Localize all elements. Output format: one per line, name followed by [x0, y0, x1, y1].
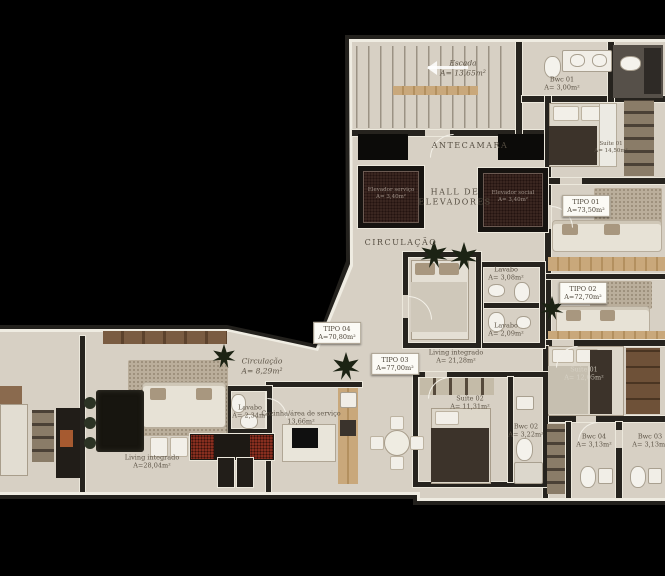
wall	[266, 382, 362, 387]
dining-chair	[390, 456, 404, 470]
wine-rack	[250, 435, 273, 459]
shower-box	[514, 462, 543, 484]
room-label-lavabo-2: LavaboA= 2,09m²	[488, 322, 523, 339]
floor-plan-canvas: Elevador serviçoA= 3,40m² Elevador socia…	[0, 0, 665, 576]
shower-box	[644, 48, 661, 94]
pillow	[435, 411, 459, 425]
room-label-antecamara: ANTECAMARA	[432, 141, 509, 151]
balcony-deck	[548, 331, 665, 339]
toilet-icon	[630, 466, 646, 488]
unit-tag-tipo04: TIPO 04A=70,80m²	[313, 322, 361, 344]
wall	[545, 416, 665, 422]
sink-icon	[592, 54, 607, 67]
sink-icon	[488, 284, 505, 297]
sink-icon	[620, 56, 641, 71]
room-label-circulacao-comum: CirculaçãoA= 8,29m²	[242, 356, 283, 376]
kitchen-sink-icon	[340, 392, 357, 408]
sofa-pillow	[604, 224, 620, 235]
dining-chair	[410, 436, 424, 450]
curtain	[599, 103, 617, 167]
sofa-pillow	[150, 388, 166, 400]
dining-table	[96, 390, 144, 452]
sink-icon	[598, 468, 613, 484]
door-opening	[576, 416, 596, 422]
door-opening	[425, 372, 447, 377]
dining-chair	[84, 437, 96, 449]
door-opening	[560, 178, 582, 184]
cabinet	[32, 410, 54, 462]
room-label-suite02: Suíte 02A= 11,31m²	[450, 395, 490, 412]
wardrobe	[626, 348, 660, 414]
wall	[545, 274, 665, 279]
cooktop	[292, 428, 318, 448]
sofa-pillow	[600, 310, 615, 321]
dining-chair	[84, 417, 96, 429]
sink-icon	[648, 468, 662, 484]
dining-chair	[390, 416, 404, 430]
wine-rack	[191, 435, 214, 459]
elevator-2-label: Elevador socialA= 3,40m²	[492, 190, 535, 204]
wardrobe	[624, 100, 654, 176]
unit-tag-tipo01: TIPO 01A=73,50m²	[562, 195, 610, 217]
room-label-cozinha: Cozinha/área de serviço13,66m²	[261, 410, 340, 427]
elevator-1-label: Elevador serviçoA= 3,40m²	[368, 187, 415, 201]
balcony-deck	[548, 257, 665, 271]
sofa-pillow	[196, 388, 212, 400]
bed-headboard	[0, 386, 22, 404]
room-label-suite01-tipo02: Suíte 01A= 12,05m²	[564, 366, 604, 383]
room-label-living-tipo04: Living integradoA=28,04m²	[125, 454, 180, 471]
room-label-bwc03: Bwc 03A= 3,13m²	[632, 433, 665, 450]
service-shaft	[237, 458, 253, 487]
dining-chair	[84, 397, 96, 409]
stair-handrail	[393, 86, 478, 95]
wall-niche	[358, 134, 408, 160]
bed-blanket	[549, 126, 597, 165]
toilet-icon	[514, 282, 530, 302]
stairs-arrow-head-icon	[420, 61, 437, 75]
unit-tag-tipo02: TIPO 02A=72,70m²	[559, 282, 607, 304]
room-label-living-tipo03: Living integradoA= 21,28m²	[429, 349, 484, 366]
sink-icon	[516, 396, 534, 410]
pillow	[439, 263, 459, 275]
room-label-suite01-tipo01: Suíte 01A= 14,50m²	[594, 141, 628, 155]
wall	[516, 42, 522, 136]
door-opening	[616, 430, 622, 448]
bed-blanket	[431, 428, 489, 482]
bed	[0, 404, 28, 476]
wall	[80, 336, 85, 492]
room-label-bwc04: Bwc 04A= 3,13m²	[576, 433, 611, 450]
room-label-bwc01: Bwc 01A= 3,00m²	[544, 76, 579, 93]
oven	[340, 420, 356, 436]
dining-table	[384, 430, 410, 456]
pillow	[553, 106, 579, 121]
sink-icon	[570, 54, 585, 67]
unit-tag-tipo03: TIPO 03A=77,00m²	[371, 353, 419, 375]
sofa-pillow	[566, 310, 581, 321]
toilet-icon	[516, 438, 533, 461]
pillow	[415, 263, 435, 275]
toilet-icon	[580, 466, 596, 488]
service-shaft	[547, 424, 565, 494]
room-label-hall-elevadores: HALL DEELEVADORES	[418, 188, 491, 209]
service-shaft	[218, 458, 234, 487]
pantry-detail	[60, 430, 73, 447]
wall	[566, 422, 571, 498]
room-label-lavabo-1: LavaboA= 3,08m²	[488, 266, 523, 283]
room-label-circulacao: CIRCULAÇÃO	[365, 238, 438, 248]
room-label-bwc02: Bwc 02A= 3,22m²	[508, 423, 543, 440]
window-strip	[103, 331, 227, 344]
dining-chair	[370, 436, 384, 450]
room-label-escada: EscadaA= 13,65m²	[440, 58, 486, 78]
